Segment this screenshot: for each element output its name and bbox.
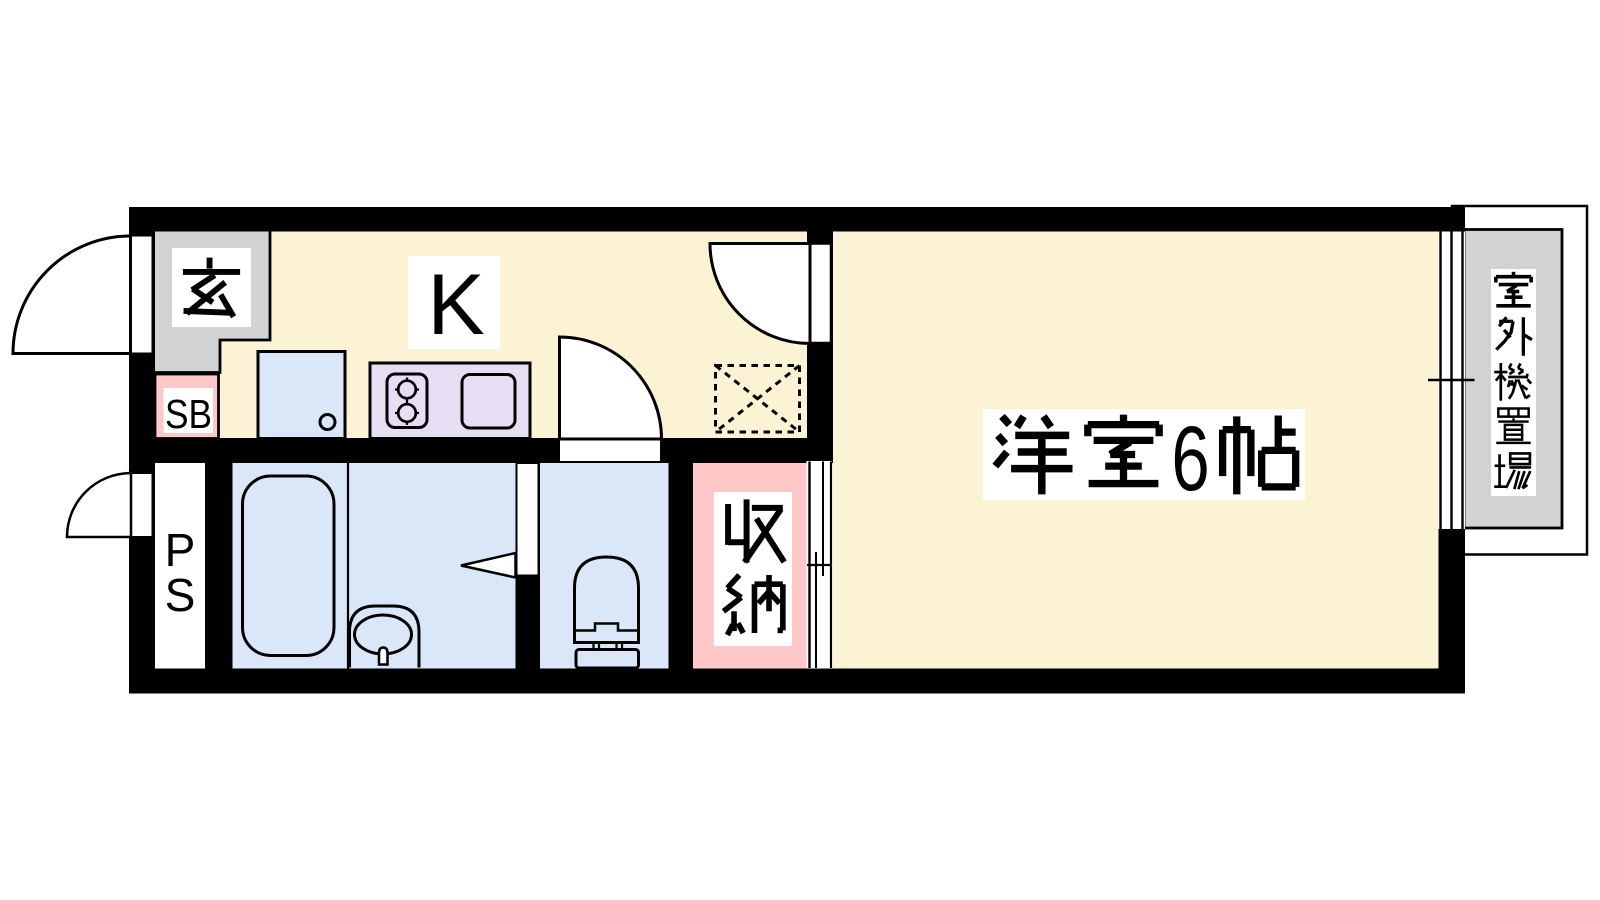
svg-text:S: S [165, 569, 196, 621]
svg-text:6: 6 [1171, 407, 1209, 510]
svg-text:SB: SB [165, 392, 212, 438]
svg-text:K: K [427, 257, 484, 353]
